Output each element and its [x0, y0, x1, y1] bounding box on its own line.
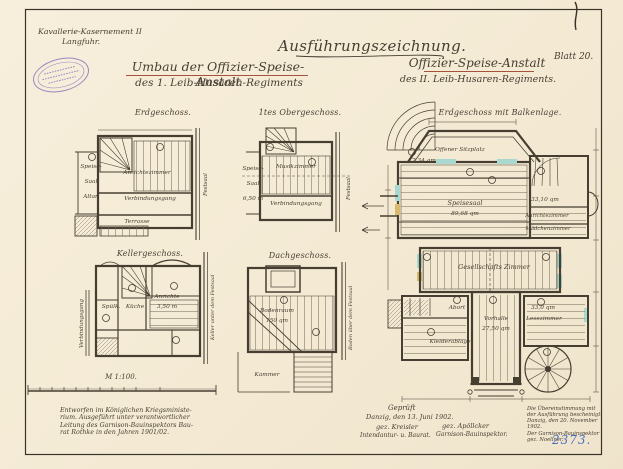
room-label-verbindungsgang-c: Verbindungsgang [80, 299, 86, 348]
room-label-maedchenzimmer-e: Mädchenzimmer [523, 227, 573, 233]
archive-number: 2373. [552, 433, 591, 447]
main-title: Ausführungszeichnung. [278, 37, 462, 55]
museum-stamp [30, 53, 92, 98]
room-label-gesellschaftszimmer-e: Gesellschafts Zimmer [452, 264, 536, 271]
room-label-anrichte-c: Anrichte [150, 294, 184, 300]
signature-2: gez. Apöllcker [442, 422, 489, 430]
room-label-kueche-c: Küche [121, 304, 149, 310]
plan-title-erdgeschoss: Erdgeschoss. [118, 108, 208, 117]
approval-title: Geprüft [388, 404, 415, 412]
unit-name-line2: Langfuhr. [62, 37, 100, 46]
plan-title-dachgeschoss: Dachgeschoss. [258, 251, 342, 260]
area-label-vorhalle-e: 27,50 qm [474, 326, 518, 332]
drawing-sheet: Kavallerie-Kasernement II Langfuhr. Ausf… [0, 0, 623, 469]
room-label-speise-b: Speise- [240, 166, 266, 172]
room-label-anrichtezimmer-e: Anrichtezimmer [522, 214, 572, 220]
room-label-speisesaal-e: Speisesaal [434, 200, 496, 207]
area-label-sitzplatz-e: 17,34 qm [403, 158, 441, 164]
room-label-kleiderablage-e: Kleiderablage [423, 339, 477, 345]
room-label-abort-e: Abort [443, 305, 471, 311]
room-label-terrasse-a: Terrasse [112, 219, 162, 225]
scale-bar [28, 385, 216, 395]
spiral-stair [525, 346, 571, 392]
area-label-lesezimmer-e: 33,0 qm [522, 305, 564, 311]
signature-1-role: Intendantur- u. Baurat. [360, 432, 431, 439]
room-label-boden-rechts-d: Boden über dem Festsaal [349, 286, 354, 350]
plan-title-kellergeschoss: Kellergeschoss. [108, 249, 192, 258]
signature-2-role: Garnison-Bauinspektor. [436, 431, 507, 438]
signature-1: gez. Kreisler [376, 423, 418, 431]
room-label-keller-rechts-c: Keller unter dem Festsaal [211, 275, 216, 340]
right-project-title-line2: des II. Leib-Husaren-Regiments. [398, 74, 558, 85]
construction-note-line2: rium. Ausgeführt unter verantwortlicher [60, 414, 240, 421]
certification-line3: Danzig, den 20. November 1902. [527, 418, 603, 430]
right-title-red-underline [424, 71, 534, 72]
room-label-musikzimmer-b: Musikzimmer [266, 164, 326, 170]
dimension-label-c: 3,50 m [150, 304, 184, 310]
construction-note-line1: Entworfen im Königlichen Kriegsministe- [60, 407, 240, 414]
room-label-bodenraum-d: Bodenraum [250, 308, 304, 314]
plan-obergeschoss-drawing [242, 128, 350, 232]
room-label-speise-a: Speise- [78, 164, 104, 170]
area-label-speisesaal-e: 89,68 qm [437, 211, 493, 217]
construction-note-line4: rat Rothke in den Jahren 1901/02. [60, 429, 240, 436]
room-label-saal-a: Saal [78, 179, 104, 185]
approval-date: Danzig, den 13. Juni 1902. [366, 413, 453, 421]
room-label-altan-a: Altan [78, 194, 104, 200]
room-label-festsaal-a: Festsaal [204, 173, 210, 196]
left-title-red-underline [126, 75, 308, 76]
sheet-number-label: Blatt 20. [554, 52, 593, 62]
room-label-festsaal-b: Festsaal [347, 177, 353, 200]
plan-title-obergeschoss: 1tes Obergeschoss. [245, 108, 355, 117]
corner-pen-mark [575, 2, 577, 30]
plan-title-hauptplan: Erdgeschoss mit Balkenlage. [438, 108, 562, 117]
right-project-title-line1: Offizier-Speise-Anstalt [402, 56, 552, 70]
construction-note-line3: Leitung des Garnison-Bauinspektors Bau- [60, 422, 240, 429]
area-label-anrichte-e: 33,10 qm [526, 197, 564, 203]
construction-note: Entworfen im Königlichen Kriegsministe- … [60, 407, 240, 437]
area-label-bodenraum-d: 150 qm [256, 318, 298, 324]
unit-name-line1: Kavallerie-Kasernement II [38, 27, 178, 36]
scale-label: M 1:100. [98, 374, 144, 381]
room-label-sitzplatz-e: Offener Sitzplatz [424, 147, 496, 153]
room-label-vorhalle-e: Vorhalle [474, 316, 518, 322]
left-project-title-line2: des 1. Leib-Husaren-Regiments [128, 77, 310, 89]
room-label-anrichtezimmer-a: Anrichtezimmer [116, 170, 178, 176]
room-label-lesezimmer-e: Lesezimmer [520, 316, 568, 322]
room-label-verbindungsgang-a: Verbindungsgang [118, 196, 182, 202]
room-label-saal-b: Saal [240, 181, 266, 187]
room-label-verbindungsgang-b: Verbindungsgang [264, 201, 328, 207]
room-label-kammer-d: Kammer [248, 372, 286, 378]
